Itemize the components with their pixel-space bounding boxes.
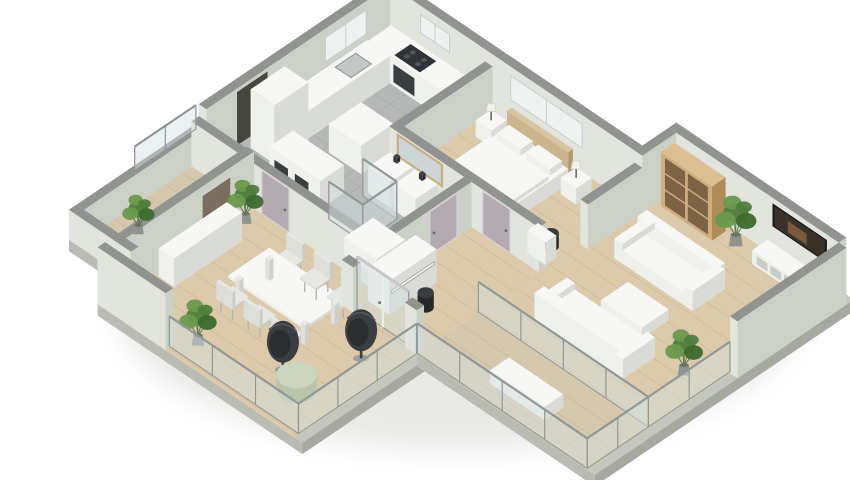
dining-table-leg-4: [301, 320, 309, 346]
dining-table-leg-1: [265, 255, 273, 281]
floorplan-stage: [0, 0, 850, 480]
dining-table-leg-2: [331, 299, 339, 325]
floorplan-3d-view: [0, 0, 850, 480]
